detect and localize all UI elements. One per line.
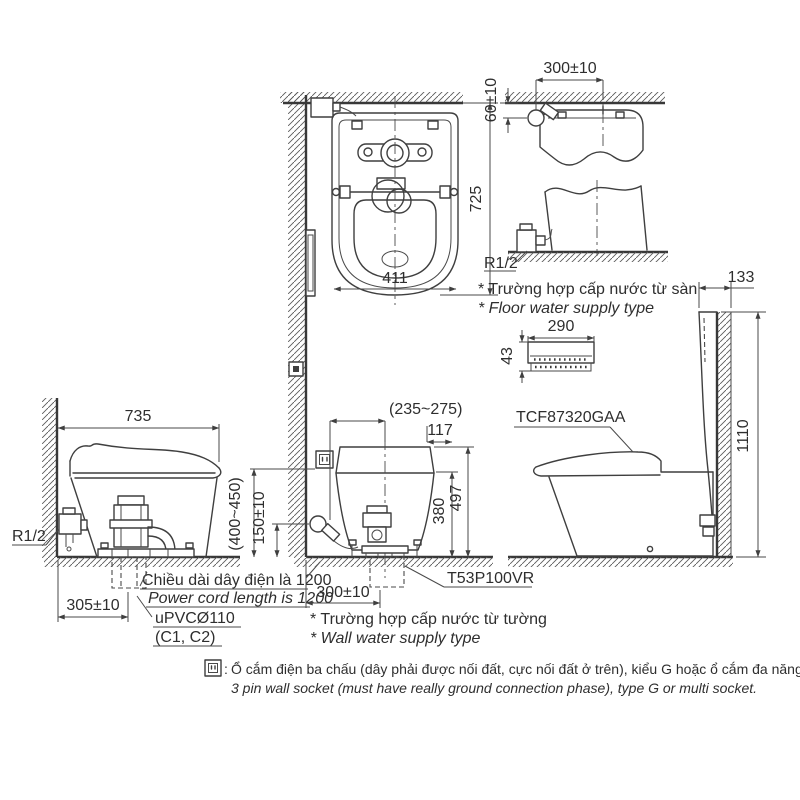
remote-control-detail: 290 43 [499, 318, 594, 383]
dim-plan-depth: 725 [468, 186, 485, 213]
thread-label-wall: R1/2 [12, 528, 46, 545]
dim-remote-width: 290 [548, 318, 575, 335]
riser-pipe [699, 312, 713, 530]
pipe-label: uPVCØ110 [155, 610, 235, 627]
dim-117: 117 [427, 422, 453, 439]
dim-plan-width: 411 [382, 270, 408, 287]
dim-remote-height: 43 [499, 347, 516, 365]
caption-floor-supply-vi: * Trường hợp cấp nước từ sàn [478, 281, 697, 298]
flush-valve [363, 513, 391, 527]
floor-hatch [508, 252, 668, 262]
floor-hatch-front [294, 557, 493, 567]
socket-symbol-icon [205, 660, 221, 676]
model-drain-label: T53P100VR [447, 570, 534, 587]
caption-floor-supply-en: * Floor water supply type [478, 300, 654, 317]
wall-hatch-left [288, 92, 306, 557]
technical-drawing-page: 725 411 300±10 60±10 [0, 0, 800, 800]
cord-note-vi: Chiều dài dây điện là 1200 [142, 572, 332, 589]
caption-wall-supply-vi: * Trường hợp cấp nước từ tường [310, 611, 547, 628]
dim-h380: 380 [431, 498, 448, 525]
toilet-installation-drawing: 725 411 300±10 60±10 [0, 0, 800, 800]
footnote-vi: Ổ cắm điện ba chấu (dây phải được nối đấ… [231, 660, 800, 677]
floor-supply-detail: 300±10 60±10 R1/2 * Trường hợp cấp nước … [478, 60, 697, 317]
cord-note-en: Power cord length is 1200 [148, 590, 333, 607]
floor-valve-box [517, 230, 536, 252]
bowl-body-profile [549, 472, 713, 556]
dim-socket-height: (400~450) [227, 477, 244, 550]
floor-supply-valve [528, 110, 544, 126]
dim-pipe-height: 1110 [735, 419, 752, 452]
plan-remote-control [306, 230, 315, 296]
dim-floor-supply-offset: 300±10 [543, 60, 596, 77]
trap-assembly [118, 496, 144, 505]
pipe-sublabel: (C1, C2) [155, 629, 215, 646]
caption-wall-supply-en: * Wall water supply type [310, 630, 481, 647]
dim-drain-offset-left: 305±10 [66, 597, 119, 614]
wall-inlet-fitting [59, 514, 81, 534]
footnote-colon: : [224, 661, 228, 677]
floor-hatch-right [508, 557, 733, 567]
wall-hatch-right [717, 312, 731, 557]
plan-supply-box [311, 98, 333, 117]
floor-hatch-left-view [44, 557, 240, 567]
wall-hatch-top [280, 92, 463, 103]
left-side-view: 735 R1/2 305±10 Chiều dài dây điện là 12… [12, 398, 333, 646]
dim-pipe-offset: 133 [728, 269, 755, 286]
dim-left-depth: 735 [125, 408, 152, 425]
thread-label-floor: R1/2 [484, 255, 518, 272]
seat-lid-profile [536, 452, 713, 472]
wall-hatch [505, 92, 665, 103]
footnote-en: 3 pin wall socket (must have really grou… [231, 680, 757, 696]
plan-view: 725 411 [280, 92, 498, 557]
dim-drain-offset-front: 300±10 [316, 584, 369, 601]
model-seat-label: TCF87320GAA [516, 409, 626, 426]
lid-profile [70, 444, 219, 468]
dim-h497: 497 [448, 485, 465, 512]
dim-supply-offset: (235~275) [389, 401, 462, 418]
break-line [545, 186, 641, 194]
dim-floor-supply-height: 60±10 [483, 78, 500, 122]
footnote: : Ổ cắm điện ba chấu (dây phải được nối … [205, 660, 800, 696]
dim-supply-height: 150±10 [251, 491, 268, 544]
